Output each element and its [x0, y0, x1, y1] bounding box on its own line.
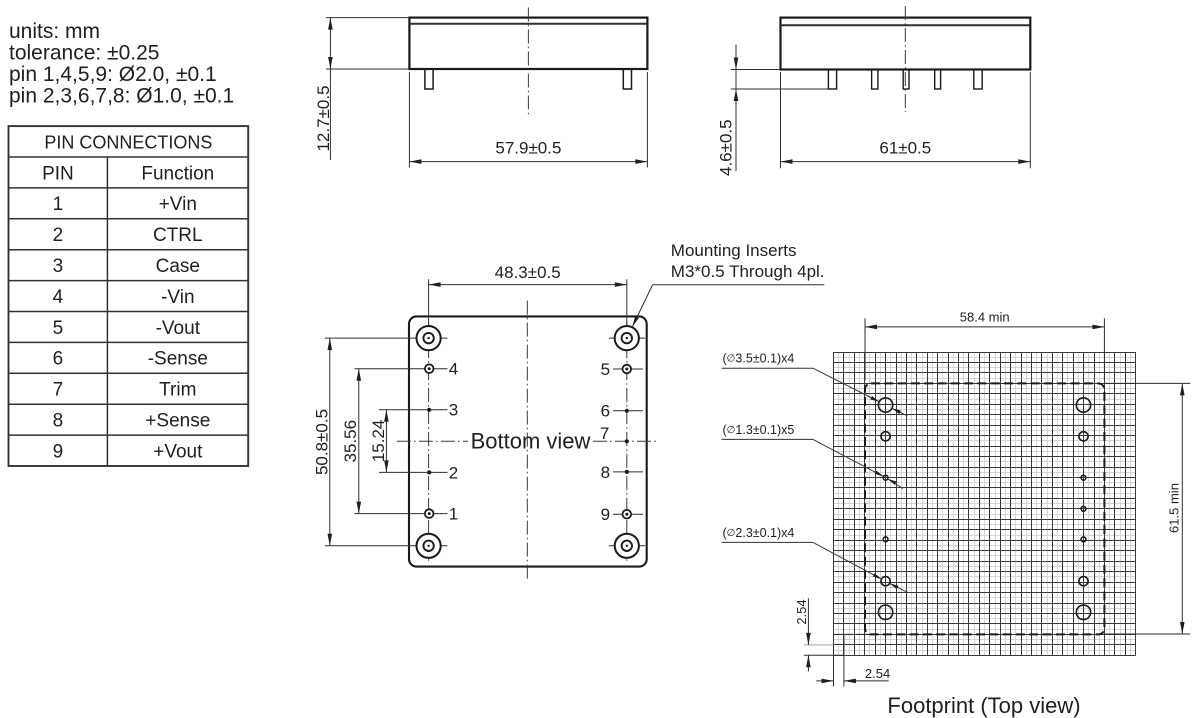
svg-text:Function: Function [141, 163, 214, 184]
svg-text:8: 8 [601, 463, 610, 482]
svg-text:CTRL: CTRL [153, 225, 203, 246]
svg-text:9: 9 [53, 441, 64, 462]
svg-text:-Vout: -Vout [156, 318, 201, 339]
svg-text:6: 6 [53, 349, 64, 370]
svg-text:M3*0.5 Through 4pl.: M3*0.5 Through 4pl. [671, 262, 825, 281]
svg-text:2: 2 [53, 225, 64, 246]
svg-text:+Vout: +Vout [153, 441, 203, 462]
svg-text:61±0.5: 61±0.5 [879, 139, 931, 158]
svg-text:4: 4 [53, 287, 64, 308]
svg-text:8: 8 [53, 410, 64, 431]
svg-text:Trim: Trim [159, 380, 196, 401]
svg-text:7: 7 [53, 380, 64, 401]
svg-text:5: 5 [601, 360, 610, 379]
svg-text:50.8±0.5: 50.8±0.5 [312, 409, 331, 475]
svg-text:5: 5 [53, 318, 64, 339]
svg-text:61.5 min: 61.5 min [1167, 483, 1182, 533]
svg-text:pin 2,3,6,7,8: Ø1.0, ±0.1: pin 2,3,6,7,8: Ø1.0, ±0.1 [9, 85, 234, 108]
svg-text:Case: Case [156, 256, 200, 277]
svg-text:4.6±0.5: 4.6±0.5 [716, 119, 735, 176]
svg-text:3: 3 [449, 401, 458, 420]
svg-text:(∅2.3±0.1)x4: (∅2.3±0.1)x4 [723, 526, 795, 540]
svg-text:pin 1,4,5,9: Ø2.0, ±0.1: pin 1,4,5,9: Ø2.0, ±0.1 [9, 63, 217, 86]
svg-text:48.3±0.5: 48.3±0.5 [495, 263, 561, 282]
svg-text:+Vin: +Vin [159, 194, 197, 215]
svg-text:9: 9 [601, 505, 610, 524]
svg-text:PIN CONNECTIONS: PIN CONNECTIONS [44, 132, 212, 152]
svg-text:units: mm: units: mm [9, 20, 100, 43]
svg-text:Bottom view: Bottom view [471, 429, 591, 454]
svg-text:(∅3.5±0.1)x4: (∅3.5±0.1)x4 [723, 352, 795, 366]
svg-text:7: 7 [600, 424, 609, 443]
svg-text:2.54: 2.54 [865, 666, 890, 681]
svg-text:(∅1.3±0.1)x5: (∅1.3±0.1)x5 [723, 423, 795, 437]
svg-text:58.4 min: 58.4 min [960, 310, 1010, 325]
svg-text:3: 3 [53, 256, 64, 277]
svg-text:PIN: PIN [42, 163, 74, 184]
svg-text:+Sense: +Sense [145, 410, 210, 431]
svg-text:6: 6 [601, 402, 610, 421]
svg-text:-Sense: -Sense [148, 349, 208, 370]
svg-text:12.7±0.5: 12.7±0.5 [314, 85, 333, 151]
svg-text:-Vin: -Vin [161, 287, 194, 308]
svg-text:Footprint (Top view): Footprint (Top view) [887, 693, 1080, 718]
svg-text:2.54: 2.54 [794, 599, 809, 624]
svg-text:1: 1 [449, 505, 458, 524]
svg-text:Mounting Inserts: Mounting Inserts [671, 241, 797, 260]
svg-text:2: 2 [449, 463, 458, 482]
svg-text:35.56: 35.56 [341, 420, 360, 463]
svg-text:57.9±0.5: 57.9±0.5 [495, 139, 561, 158]
svg-text:4: 4 [449, 360, 458, 379]
svg-text:tolerance: ±0.25: tolerance: ±0.25 [9, 42, 159, 65]
svg-text:1: 1 [53, 194, 64, 215]
svg-text:15.24: 15.24 [369, 420, 388, 463]
